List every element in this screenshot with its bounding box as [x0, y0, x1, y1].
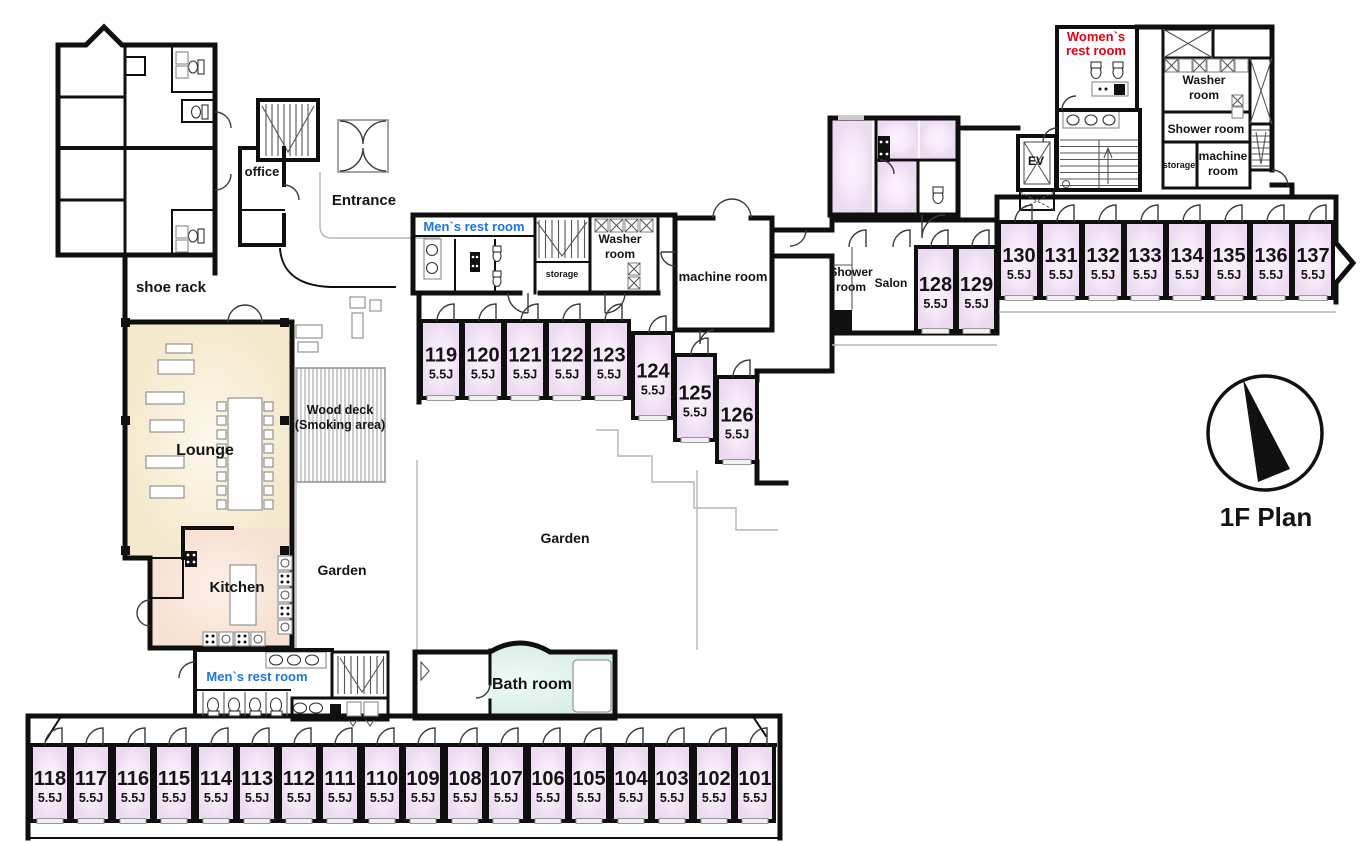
- plan-title: 1F Plan: [1220, 502, 1312, 532]
- room-number: 112: [283, 768, 315, 790]
- room-119: 1195.5J: [421, 304, 461, 401]
- room-number: 113: [241, 768, 273, 790]
- window: [1173, 296, 1201, 301]
- room-size: 5.5J: [660, 791, 684, 805]
- label-storage-mid: storage: [546, 269, 579, 279]
- room-size: 5.5J: [641, 384, 665, 398]
- room-number: 129: [960, 274, 993, 296]
- window: [1257, 296, 1285, 301]
- room-number: 110: [366, 768, 398, 790]
- compass-north-indicator: [1208, 376, 1322, 490]
- room-number: 133: [1128, 245, 1161, 267]
- window: [511, 396, 539, 401]
- window: [1215, 296, 1243, 301]
- room-number: 130: [1002, 245, 1035, 267]
- room-129: 1295.5J: [957, 230, 996, 334]
- room-105: 1055.5J: [570, 728, 608, 824]
- room-size: 5.5J: [121, 791, 145, 805]
- room-121: 1215.5J: [505, 304, 545, 401]
- room-113: 1135.5J: [238, 728, 276, 824]
- room-number: 108: [448, 768, 481, 790]
- shower-room-dark-corner: [833, 310, 852, 331]
- label-mens-rest-room-upper: Men`s rest room: [423, 219, 524, 234]
- room-size: 5.5J: [494, 791, 518, 805]
- room-number: 120: [466, 345, 499, 367]
- room-131: 1315.5J: [1041, 205, 1081, 301]
- room-110: 1105.5J: [363, 728, 401, 824]
- window: [1089, 296, 1117, 301]
- window: [1299, 296, 1327, 301]
- room-size: 5.5J: [245, 791, 269, 805]
- window: [1005, 296, 1033, 301]
- window: [469, 396, 497, 401]
- room-number: 122: [550, 345, 583, 367]
- window: [595, 396, 623, 401]
- window: [1131, 296, 1159, 301]
- label-storage-tr: storage: [1163, 160, 1196, 170]
- window: [78, 819, 104, 824]
- window: [37, 819, 63, 824]
- stairs-top-right: [1252, 130, 1270, 166]
- room-137: 1375.5J: [1293, 205, 1333, 301]
- window: [922, 329, 949, 334]
- room-125: 1255.5J: [675, 338, 715, 443]
- room-size: 5.5J: [287, 791, 311, 805]
- room-size: 5.5J: [453, 791, 477, 805]
- window: [963, 329, 990, 334]
- room-109: 1095.5J: [404, 728, 442, 824]
- window: [535, 819, 561, 824]
- room-number: 132: [1086, 245, 1119, 267]
- room-size: 5.5J: [964, 297, 988, 311]
- label-ev: EV: [1028, 154, 1044, 168]
- label-wood-deck-2: (Smoking area): [295, 418, 385, 432]
- window: [639, 416, 667, 421]
- window: [410, 819, 436, 824]
- room-number: 111: [324, 768, 355, 790]
- window: [493, 819, 519, 824]
- room-116: 1165.5J: [114, 728, 152, 824]
- window: [203, 819, 229, 824]
- room-number: 116: [117, 768, 149, 790]
- room-number: 128: [919, 274, 952, 296]
- window: [452, 819, 478, 824]
- room-130: 1305.5J: [999, 205, 1039, 301]
- compass-needle: [1243, 379, 1290, 482]
- room-104: 1045.5J: [612, 728, 650, 824]
- room-size: 5.5J: [38, 791, 62, 805]
- window: [286, 819, 312, 824]
- floor-plan-canvas: 1195.5J1205.5J1215.5J1225.5J1235.5J1245.…: [0, 0, 1361, 842]
- room-size: 5.5J: [577, 791, 601, 805]
- room-number: 126: [720, 405, 753, 427]
- room-size: 5.5J: [328, 791, 352, 805]
- room-number: 124: [636, 361, 670, 383]
- labels: shoe rack office Entrance Men`s rest roo…: [136, 29, 1312, 693]
- room-number: 134: [1170, 245, 1204, 267]
- room-size: 5.5J: [619, 791, 643, 805]
- room-103: 1035.5J: [653, 728, 691, 824]
- label-lounge: Lounge: [176, 442, 234, 459]
- label-garden-center: Garden: [540, 530, 589, 546]
- unit-room-b: [876, 162, 918, 213]
- window: [742, 819, 768, 824]
- unit-room-a: [832, 120, 872, 213]
- label-machine-room-mid: machine room: [679, 269, 768, 284]
- room-number: 114: [200, 768, 233, 790]
- room-size: 5.5J: [204, 791, 228, 805]
- room-size: 5.5J: [725, 428, 749, 442]
- room-size: 5.5J: [79, 791, 103, 805]
- room-101: 1015.5J: [736, 728, 774, 824]
- window: [161, 819, 187, 824]
- room-115: 1155.5J: [155, 728, 193, 824]
- room-size: 5.5J: [429, 368, 453, 382]
- window: [681, 438, 709, 443]
- room-size: 5.5J: [555, 368, 579, 382]
- room-size: 5.5J: [1133, 268, 1157, 282]
- room-number: 102: [697, 768, 730, 790]
- label-washer-room-mid-2: room: [605, 247, 635, 261]
- room-size: 5.5J: [471, 368, 495, 382]
- window: [701, 819, 727, 824]
- room-size: 5.5J: [1007, 268, 1031, 282]
- label-bath-room: Bath room: [492, 676, 572, 693]
- room-133: 1335.5J: [1125, 205, 1165, 301]
- window: [1047, 296, 1075, 301]
- room-number: 104: [614, 768, 648, 790]
- room-size: 5.5J: [1217, 268, 1241, 282]
- window: [427, 396, 455, 401]
- window: [618, 819, 644, 824]
- room-number: 131: [1044, 245, 1077, 267]
- stairs-mens-lower: [338, 656, 384, 694]
- label-washer-room-tr-2: room: [1189, 88, 1219, 102]
- room-107: 1075.5J: [487, 728, 525, 824]
- room-number: 115: [158, 768, 190, 790]
- room-size: 5.5J: [1259, 268, 1283, 282]
- room-size: 5.5J: [1175, 268, 1199, 282]
- room-number: 137: [1296, 245, 1329, 267]
- window: [553, 396, 581, 401]
- label-shower-room-left-1: Shower: [829, 265, 873, 279]
- label-shower-room-tr: Shower room: [1168, 122, 1245, 136]
- label-washer-room-mid-1: Washer: [599, 232, 642, 246]
- window: [327, 819, 353, 824]
- lounge-shelf: [158, 360, 194, 374]
- label-office: office: [245, 164, 280, 179]
- room-size: 5.5J: [597, 368, 621, 382]
- room-size: 5.5J: [923, 297, 947, 311]
- room-size: 5.5J: [1049, 268, 1073, 282]
- room-size: 5.5J: [162, 791, 186, 805]
- room-size: 5.5J: [683, 406, 707, 420]
- room-118: 1185.5J: [31, 728, 69, 824]
- stairs-central: [1060, 140, 1138, 188]
- room-number: 109: [406, 768, 439, 790]
- room-number: 103: [655, 768, 688, 790]
- room-135: 1355.5J: [1209, 205, 1249, 301]
- window: [576, 819, 602, 824]
- room-136: 1365.5J: [1251, 205, 1291, 301]
- stairs-mid: [537, 220, 587, 258]
- label-mens-rest-room-lower: Men`s rest room: [206, 669, 307, 684]
- room-114: 1145.5J: [197, 728, 235, 824]
- label-salon: Salon: [875, 276, 908, 290]
- room-number: 118: [34, 768, 66, 790]
- window: [369, 819, 395, 824]
- room-number: 101: [738, 768, 771, 790]
- bath-tub: [573, 660, 611, 712]
- label-machine-room-tr-2: room: [1208, 164, 1238, 178]
- room-122: 1225.5J: [547, 304, 587, 401]
- room-111: 1115.5J: [321, 728, 359, 824]
- room-number: 121: [508, 345, 541, 367]
- stairs: [262, 104, 1270, 694]
- room-102: 1025.5J: [695, 728, 733, 824]
- stairs-office: [262, 104, 314, 156]
- lounge-area: [125, 322, 292, 558]
- room-size: 5.5J: [411, 791, 435, 805]
- room-size: 5.5J: [1091, 268, 1115, 282]
- unit-room-d: [920, 120, 956, 158]
- label-machine-room-tr-1: machine: [1199, 149, 1248, 163]
- label-shower-room-left-2: room: [836, 280, 866, 294]
- label-entrance: Entrance: [332, 192, 396, 209]
- entrance-vestibule: [338, 120, 388, 172]
- room-number: 125: [678, 383, 711, 405]
- room-number: 123: [592, 345, 625, 367]
- building-arrow-137: [1336, 243, 1353, 283]
- room-112: 1125.5J: [280, 728, 318, 824]
- room-number: 105: [572, 768, 605, 790]
- room-size: 5.5J: [743, 791, 767, 805]
- window: [244, 819, 270, 824]
- room-117: 1175.5J: [72, 728, 110, 824]
- room-134: 1345.5J: [1167, 205, 1207, 301]
- room-number: 136: [1254, 245, 1287, 267]
- window: [659, 819, 685, 824]
- room-number: 106: [531, 768, 564, 790]
- window: [120, 819, 146, 824]
- window: [723, 460, 751, 465]
- room-128: 1285.5J: [916, 230, 955, 334]
- room-108: 1085.5J: [446, 728, 484, 824]
- label-womens-rest-room-2: rest room: [1066, 43, 1126, 58]
- room-number: 135: [1212, 245, 1245, 267]
- room-132: 1325.5J: [1083, 205, 1123, 301]
- room-number: 119: [425, 345, 457, 367]
- room-size: 5.5J: [1301, 268, 1325, 282]
- room-106: 1065.5J: [529, 728, 567, 824]
- label-wood-deck-1: Wood deck: [307, 403, 373, 417]
- room-120: 1205.5J: [463, 304, 503, 401]
- label-garden-left: Garden: [317, 562, 366, 578]
- room-123: 1235.5J: [589, 304, 629, 401]
- label-washer-room-tr-1: Washer: [1183, 73, 1226, 87]
- room-number: 107: [489, 768, 522, 790]
- bath-changing-area: [417, 654, 488, 716]
- label-shoe-rack: shoe rack: [136, 279, 207, 296]
- label-womens-rest-room-1: Women`s: [1067, 29, 1125, 44]
- room-size: 5.5J: [536, 791, 560, 805]
- room-size: 5.5J: [370, 791, 394, 805]
- label-kitchen: Kitchen: [209, 579, 264, 596]
- floor-plan: 1195.5J1205.5J1215.5J1225.5J1235.5J1245.…: [0, 0, 1361, 842]
- lobby-furniture: [296, 297, 381, 352]
- room-size: 5.5J: [702, 791, 726, 805]
- room-number: 117: [75, 768, 107, 790]
- room-size: 5.5J: [513, 368, 537, 382]
- room-126: 1265.5J: [717, 360, 757, 465]
- room-124: 1245.5J: [633, 316, 673, 421]
- lounge-tv: [166, 344, 192, 353]
